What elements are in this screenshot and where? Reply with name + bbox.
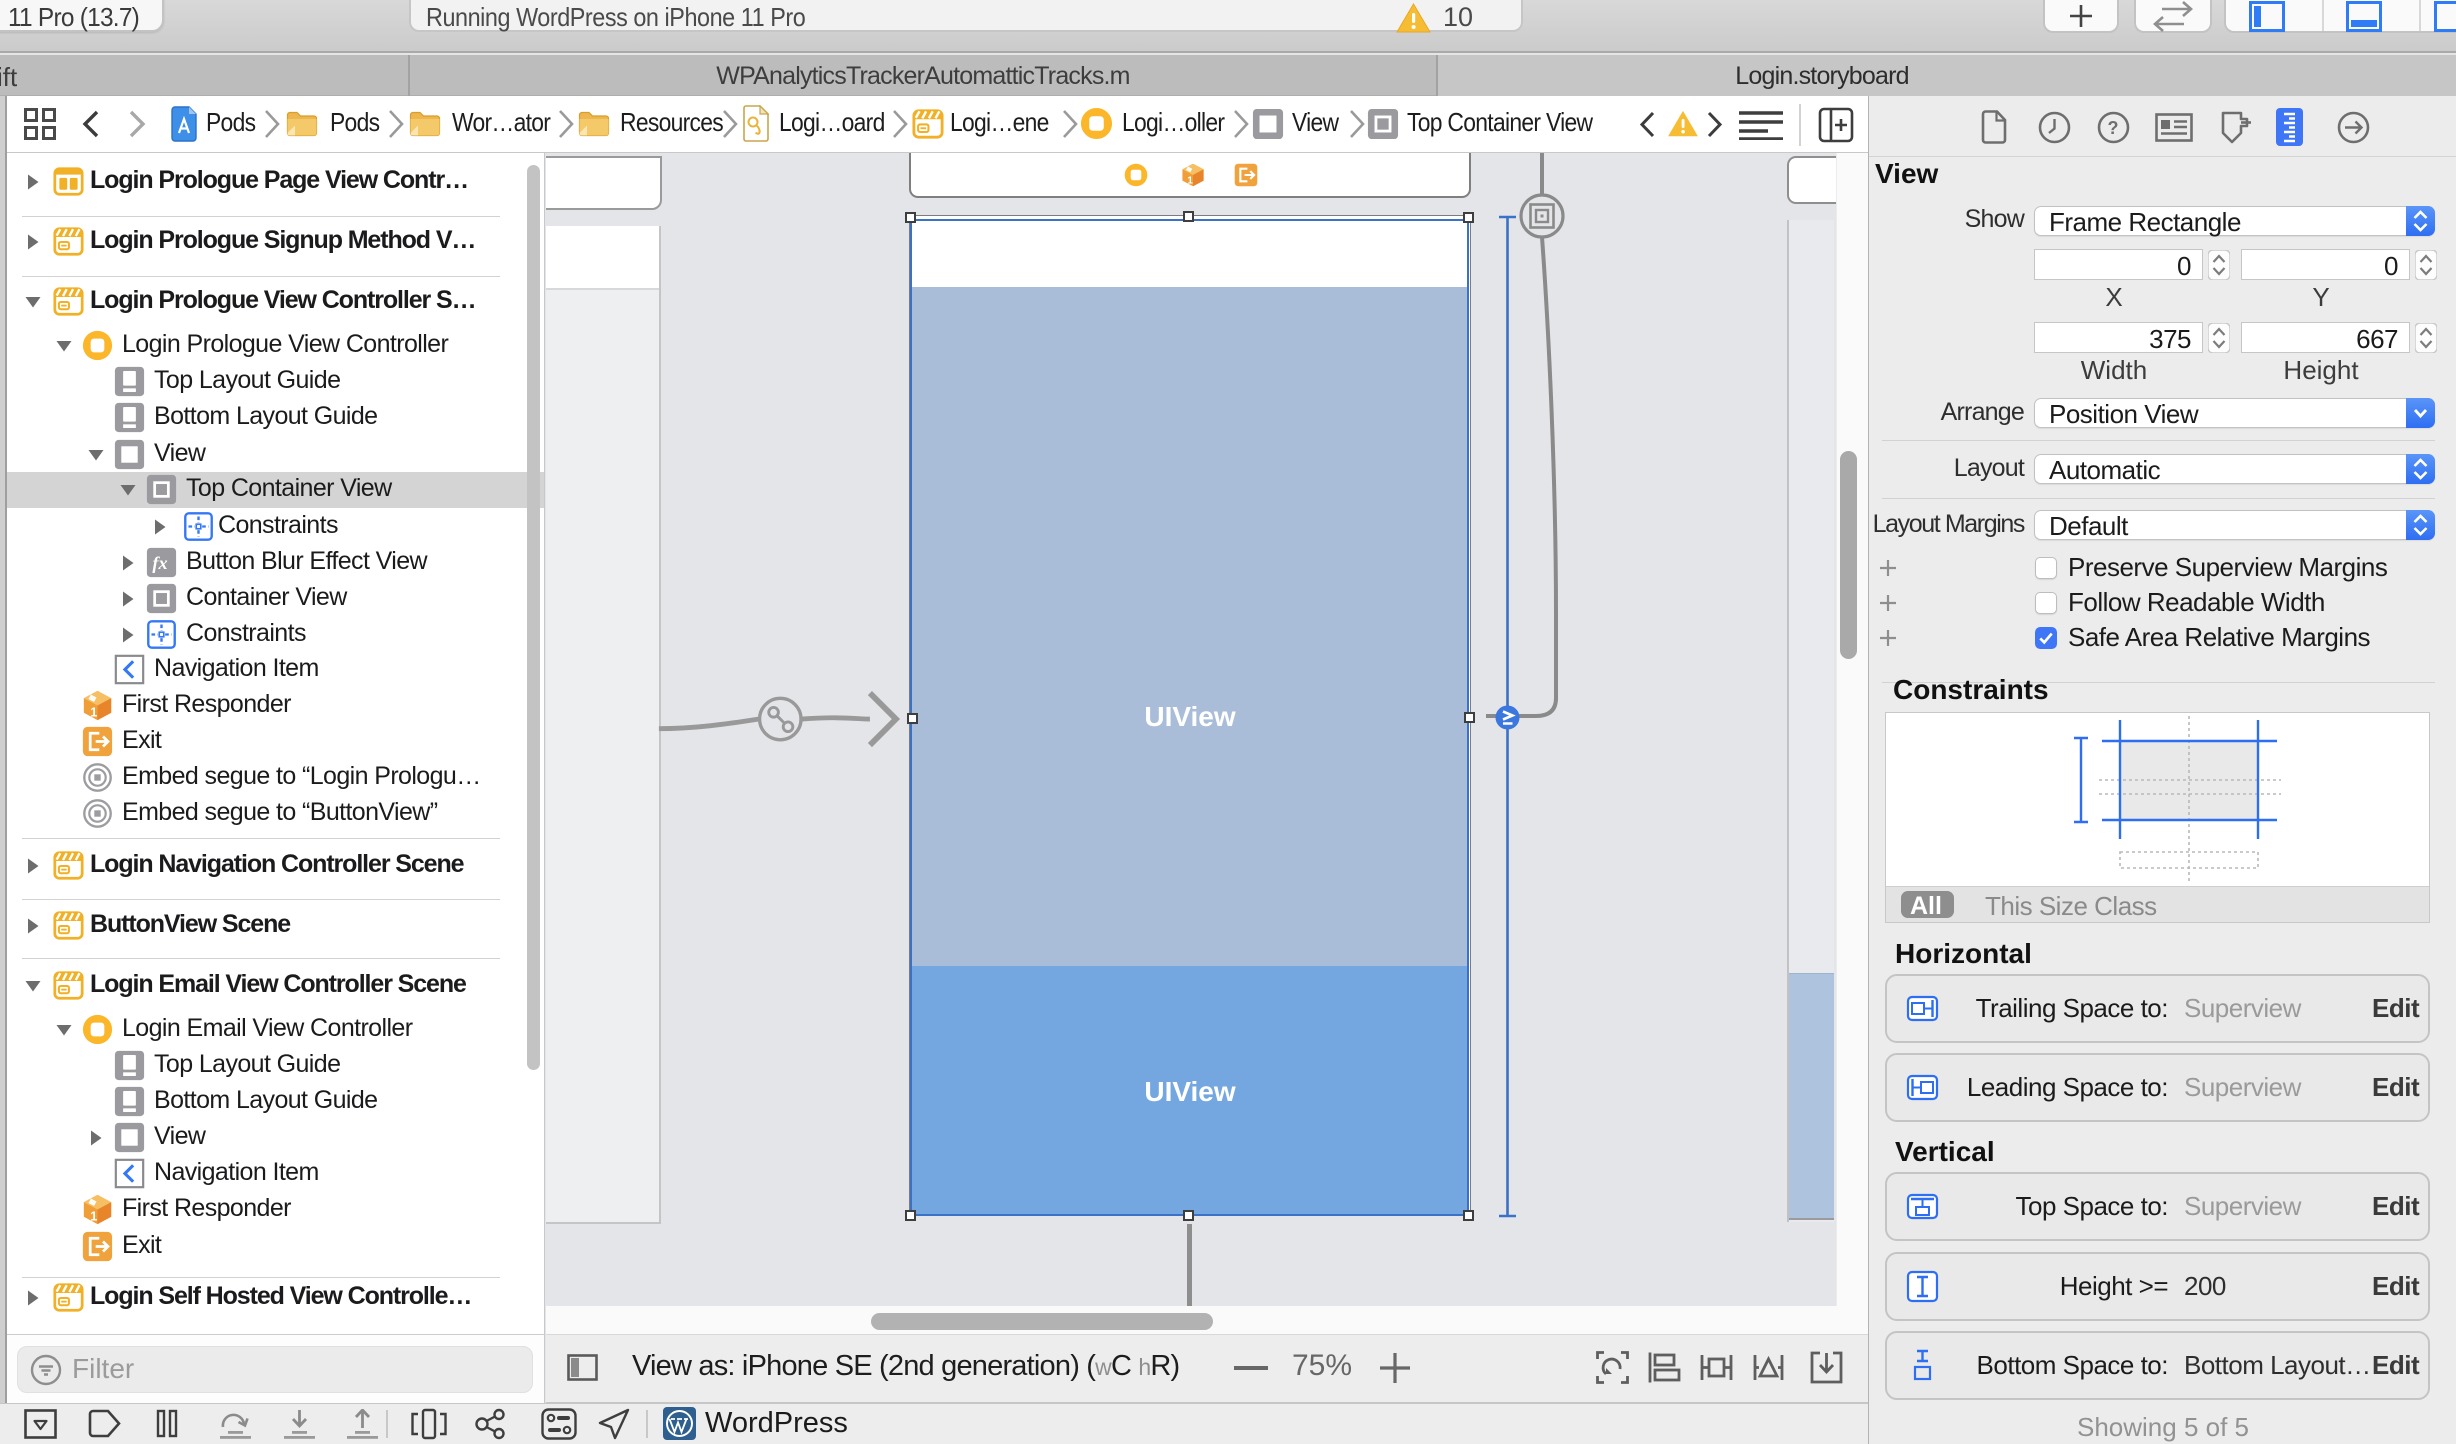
- svg-text:?: ?: [2108, 118, 2119, 138]
